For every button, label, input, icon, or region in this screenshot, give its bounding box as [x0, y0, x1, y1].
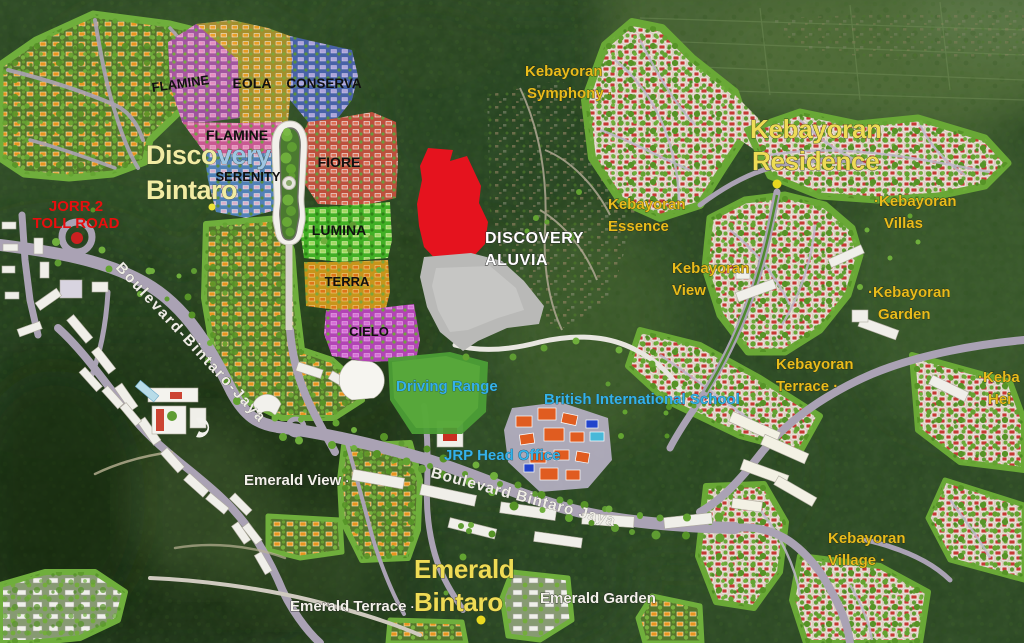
svg-text:Kebayoran: Kebayoran: [828, 530, 906, 547]
svg-text:EOLA: EOLA: [233, 75, 272, 91]
svg-text:Kebayoran: Kebayoran: [672, 260, 750, 277]
svg-text:Village ·: Village ·: [828, 552, 885, 569]
svg-text:FIORE: FIORE: [318, 154, 361, 170]
svg-text:JRP Head Office: JRP Head Office: [444, 447, 560, 464]
svg-text:British International School: British International School: [544, 391, 740, 408]
svg-text:Emerald Garden: Emerald Garden: [540, 590, 656, 607]
svg-text:Bintaro: Bintaro: [414, 587, 503, 617]
svg-text:Symphony ·: Symphony ·: [527, 85, 612, 102]
svg-text:CONSERVA: CONSERVA: [286, 76, 362, 91]
svg-text:Discovery: Discovery: [146, 140, 271, 170]
svg-text:Garden: Garden: [878, 306, 931, 323]
svg-text:Kebayoran: Kebayoran: [776, 356, 854, 373]
svg-text:TOLL ROAD: TOLL ROAD: [33, 215, 120, 232]
svg-text:Residence: Residence: [752, 146, 879, 176]
svg-text:Emerald: Emerald: [414, 554, 515, 584]
svg-text:·Kebayoran: ·Kebayoran: [868, 284, 951, 301]
svg-text:Essence: Essence: [608, 218, 669, 235]
svg-text:·Kebayoran: ·Kebayoran: [874, 193, 957, 210]
svg-text:CIELO: CIELO: [349, 324, 389, 339]
svg-text:Kebayoran: Kebayoran: [608, 196, 686, 213]
svg-text:Emerald Terrace ·: Emerald Terrace ·: [290, 598, 415, 615]
svg-text:Hei: Hei: [988, 391, 1011, 408]
svg-text:JORR 2: JORR 2: [49, 198, 103, 215]
svg-text:DISCOVERY: DISCOVERY: [485, 230, 584, 247]
svg-text:TERRA: TERRA: [325, 274, 370, 289]
svg-text:Driving Range: Driving Range: [396, 378, 498, 395]
svg-text:Kebayoran: Kebayoran: [525, 63, 603, 80]
svg-text:Villas: Villas: [884, 215, 923, 232]
svg-text:LUMINA: LUMINA: [312, 222, 366, 238]
svg-text:SERENITY: SERENITY: [215, 169, 280, 184]
svg-text:Emerald View ·: Emerald View ·: [244, 472, 349, 489]
svg-text:Terrace ·: Terrace ·: [776, 378, 838, 395]
svg-text:View: View: [672, 282, 706, 299]
svg-text:FLAMINE: FLAMINE: [206, 127, 268, 143]
svg-text:Kebayoran: Kebayoran: [750, 114, 882, 144]
svg-text:ALUVIA: ALUVIA: [485, 252, 548, 269]
svg-text:·Keba: ·Keba: [978, 369, 1020, 386]
